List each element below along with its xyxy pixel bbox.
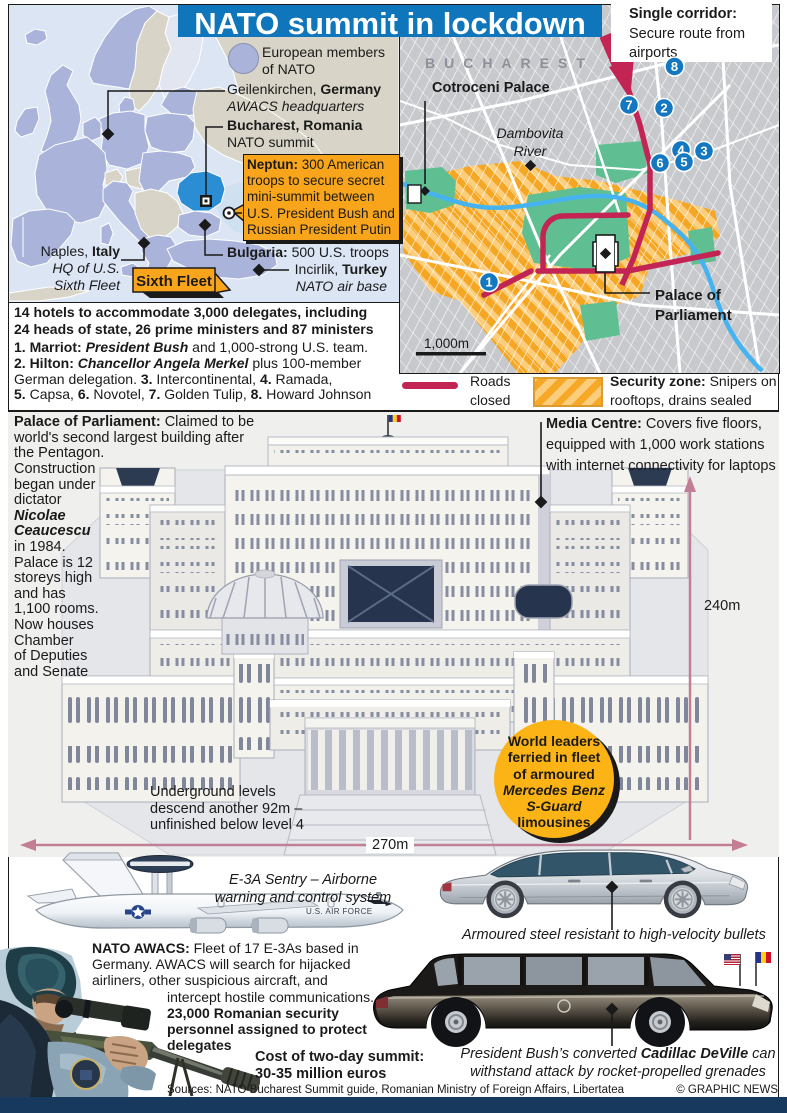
svg-text:8: 8 [671,59,678,74]
svg-text:1: 1 [485,275,492,290]
svg-text:Sixth Fleet: Sixth Fleet [136,273,212,290]
svg-text:5: 5 [680,155,687,170]
svg-text:2: 2 [660,101,667,116]
svg-text:6: 6 [656,156,663,171]
svg-text:7: 7 [625,98,632,113]
svg-text:3: 3 [700,144,707,159]
svg-text:U.S. AIR FORCE: U.S. AIR FORCE [306,907,373,916]
